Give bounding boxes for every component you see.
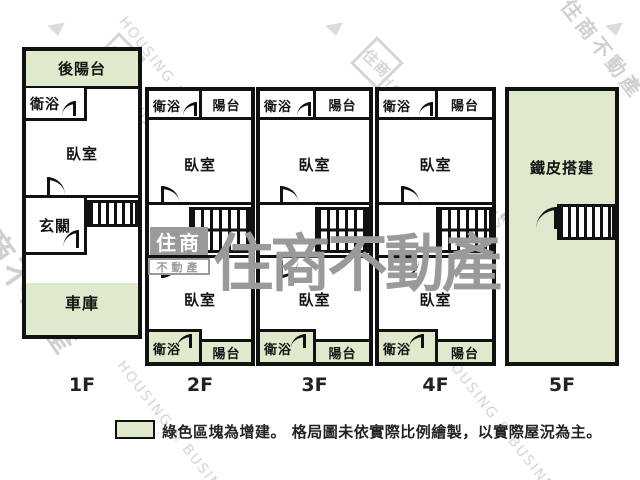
floor-plan-canvas: HOUSING & BUSINESS HOUSING & BUSINESS HO… xyxy=(0,0,640,480)
stairs xyxy=(557,204,615,240)
watermark-fragment xyxy=(325,23,345,38)
door-arc xyxy=(183,102,197,116)
door-arc xyxy=(297,102,311,116)
floor-block-4f: 衛浴 陽台 臥室 臥室 衛浴 陽台 xyxy=(375,87,496,366)
room-label: 衛浴 xyxy=(153,339,181,358)
door-arc xyxy=(280,186,298,202)
room-label: 衛浴 xyxy=(383,96,411,115)
room-label: 臥室 xyxy=(260,289,369,310)
floor-label-4f: 4F xyxy=(375,374,496,396)
floor-label-2f: 2F xyxy=(145,374,255,396)
room-label: 陽台 xyxy=(451,95,479,114)
room-balcony-top: 陽台 xyxy=(202,91,251,120)
stairs xyxy=(315,207,369,253)
room-label: 陽台 xyxy=(328,343,356,362)
room-label: 臥室 xyxy=(149,289,251,310)
brand-logo-watermark: 住商 xyxy=(350,36,404,90)
stairs xyxy=(189,207,251,253)
door-arc xyxy=(62,101,76,116)
stairs xyxy=(436,207,492,253)
floor-label-1f: 1F xyxy=(22,374,142,396)
door-arc xyxy=(401,186,419,202)
room-bedroom-front: 臥室 xyxy=(149,120,251,205)
room-label: 陽台 xyxy=(328,95,356,114)
door-arc xyxy=(401,261,419,278)
watermark-text-en: HOUSING & BUSINESS xyxy=(439,350,570,480)
room-garage: 車庫 xyxy=(26,283,138,335)
room-label: 衛浴 xyxy=(153,96,181,115)
door-arc xyxy=(280,261,298,278)
room-label: 陽台 xyxy=(212,343,240,362)
room-label: 臥室 xyxy=(26,143,138,164)
room-label: 臥室 xyxy=(379,289,492,310)
room-bedroom-back: 臥室 xyxy=(379,255,492,339)
watermark-fragment xyxy=(605,23,625,38)
stairs xyxy=(87,200,138,227)
room-entry: 玄關 xyxy=(26,198,87,255)
door-arc xyxy=(47,177,65,195)
room-bathroom-bottom: 衛浴 xyxy=(260,329,316,362)
room-label: 陽台 xyxy=(212,95,240,114)
door-arc xyxy=(536,207,557,229)
room-balcony-top: 陽台 xyxy=(438,91,492,120)
floor-block-1f: 後陽台 臥室 衛浴 玄關 車庫 xyxy=(22,47,142,339)
room-label: 臥室 xyxy=(260,154,369,175)
room-balcony-bottom: 陽台 xyxy=(202,339,251,362)
room-label: 陽台 xyxy=(451,343,479,362)
room-label: 臥室 xyxy=(379,154,492,175)
door-arc xyxy=(161,261,179,278)
door-arc xyxy=(419,102,433,116)
room-balcony-top: 陽台 xyxy=(316,91,369,120)
floor-block-5f: 鐵皮搭建 xyxy=(505,87,619,366)
room-bathroom-top: 衛浴 xyxy=(260,91,316,120)
room-label: 衛浴 xyxy=(30,94,60,114)
room-bathroom: 衛浴 xyxy=(26,88,87,121)
room-label: 衛浴 xyxy=(264,96,292,115)
door-arc xyxy=(291,334,306,348)
room-label: 車庫 xyxy=(26,290,138,314)
room-bathroom-bottom: 衛浴 xyxy=(149,329,202,362)
room-bathroom-top: 衛浴 xyxy=(379,91,438,120)
room-bedroom-back: 臥室 xyxy=(260,255,369,339)
room-label: 鐵皮搭建 xyxy=(509,157,615,178)
room-label: 衛浴 xyxy=(264,339,292,358)
room-label: 玄關 xyxy=(39,215,71,236)
room-label: 後陽台 xyxy=(58,58,106,79)
room-bedroom-front: 臥室 xyxy=(260,120,369,205)
legend-swatch xyxy=(115,420,155,439)
room-label: 臥室 xyxy=(149,154,251,175)
room-balcony-bottom: 陽台 xyxy=(438,339,492,362)
door-arc xyxy=(409,334,424,348)
room-bathroom-top: 衛浴 xyxy=(149,91,202,120)
watermark-fragment xyxy=(47,23,67,38)
room-bedroom-front: 臥室 xyxy=(379,120,492,205)
floor-block-2f: 衛浴 陽台 臥室 臥室 衛浴 陽台 xyxy=(145,87,255,366)
door-arc xyxy=(161,186,179,202)
floor-block-3f: 衛浴 陽台 臥室 臥室 衛浴 陽台 xyxy=(256,87,373,366)
room-rear-balcony: 後陽台 xyxy=(26,51,138,89)
floor-label-3f: 3F xyxy=(256,374,373,396)
floor-label-5f: 5F xyxy=(505,374,619,396)
room-balcony-bottom: 陽台 xyxy=(316,339,369,362)
room-bedroom-back: 臥室 xyxy=(149,255,251,339)
room-label: 衛浴 xyxy=(383,339,411,358)
legend-text: 綠色區塊為增建。 格局圖未依實際比例繪製，以實際屋況為主。 xyxy=(162,421,602,442)
room-bathroom-bottom: 衛浴 xyxy=(379,329,438,362)
door-arc xyxy=(177,334,192,348)
